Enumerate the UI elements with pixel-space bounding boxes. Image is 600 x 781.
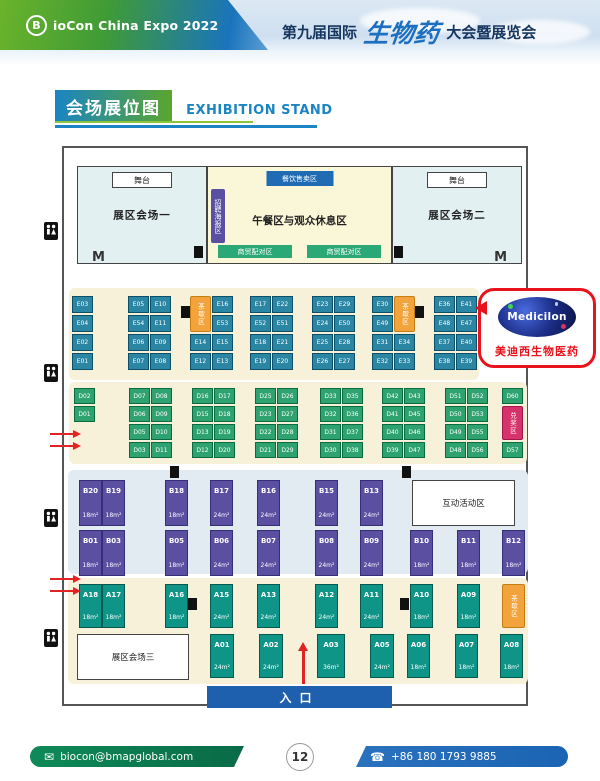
restroom-icon (44, 364, 58, 382)
booth-E05: E05 (128, 296, 149, 313)
booth-E19: E19 (250, 353, 271, 370)
booth-id: B11 (461, 537, 476, 545)
booth-D20: D20 (214, 442, 235, 458)
pillar (400, 598, 409, 610)
booth-D25: D25 (255, 388, 276, 404)
booth-B07: B0724m² (257, 530, 280, 576)
food-sales-label: 餐饮售卖区 (266, 171, 333, 186)
booth-E36: E36 (434, 296, 455, 313)
booth-id: A08 (504, 641, 519, 649)
booth-id: A15 (214, 591, 229, 599)
booth-id: A16 (169, 591, 184, 599)
booth-D29: D29 (277, 442, 298, 458)
booth-A17: A1718m² (102, 584, 125, 628)
booth-E54: E54 (128, 315, 149, 332)
pillar (394, 246, 403, 258)
booth-size: 24m² (364, 614, 380, 621)
expo-title-suffix: 大会暨展览会 (446, 24, 536, 42)
restroom-icon (44, 509, 58, 527)
booth-id: B17 (214, 487, 229, 495)
booth-D50: D50 (445, 406, 466, 422)
booth-E20: E20 (272, 353, 293, 370)
booth-E16: E16 (212, 296, 233, 313)
booth-E49: E49 (372, 315, 393, 332)
booth-D46: D46 (404, 424, 425, 440)
booth-D28: D28 (277, 424, 298, 440)
hall-three: 展区会场三 (77, 634, 189, 680)
booth-size: 18m² (459, 664, 475, 671)
booth-id: B01 (83, 537, 98, 545)
medicilon-callout: Medicilon 美迪西生物医药 (478, 288, 596, 368)
booth-D11: D11 (151, 442, 172, 458)
booth-id: A01 (214, 641, 229, 649)
biz-match-left: 商贸配对区 (218, 245, 292, 258)
booth-size: 18m² (411, 664, 427, 671)
booth-id: B15 (319, 487, 334, 495)
booth-D27: D27 (277, 406, 298, 422)
booth-B01: B0118m² (79, 530, 102, 576)
booth-A15: A1524m² (210, 584, 233, 628)
booth-A08: A0818m² (500, 634, 523, 678)
booth-B20: B2018m² (79, 480, 102, 526)
booth-id: B16 (261, 487, 276, 495)
booth-id: B07 (261, 537, 276, 545)
booth-D08: D08 (151, 388, 172, 404)
booth-B15: B1524m² (315, 480, 338, 526)
booth-E10: E10 (150, 296, 171, 313)
booth-id: A11 (364, 591, 379, 599)
booth-id: B18 (169, 487, 184, 495)
booth-D37: D37 (342, 424, 363, 440)
restroom-icon (44, 629, 58, 647)
expo-logo: B ioCon China Expo 2022 (0, 0, 268, 50)
booth-D40: D40 (382, 424, 403, 440)
exit-arrow (50, 590, 74, 592)
callout-tail (468, 301, 487, 315)
booth-A06: A0618m² (407, 634, 430, 678)
booth-D43: D43 (404, 388, 425, 404)
hall-two-name: 展区会场二 (393, 208, 521, 223)
exit-arrow (50, 578, 74, 580)
booth-size: 18m² (169, 512, 185, 519)
booth-size: 24m² (261, 512, 277, 519)
pillar (170, 466, 179, 478)
booth-D15: D15 (192, 406, 213, 422)
booth-size: 18m² (106, 562, 122, 569)
booth-D32: D32 (320, 406, 341, 422)
booth-E32: E32 (372, 353, 393, 370)
exit-arrow (50, 445, 74, 447)
footer: ✉ biocon@bmapglobal.com 12 ☎ +86 180 179… (0, 738, 600, 781)
booth-id: A18 (83, 591, 98, 599)
booth-size: 18m² (169, 614, 185, 621)
booth-id: B19 (106, 487, 121, 495)
booth-E15: E15 (212, 334, 233, 351)
booth-size: 24m² (214, 562, 230, 569)
booth-E51: E51 (272, 315, 293, 332)
booth-D01: D01 (74, 406, 95, 422)
booth-E12: E12 (190, 353, 211, 370)
booth-D06: D06 (129, 406, 150, 422)
booth-E34: E34 (394, 334, 415, 351)
booth-D16: D16 (192, 388, 213, 404)
medicilon-logo: Medicilon (498, 297, 576, 337)
booth-D33: D33 (320, 388, 341, 404)
booth-E39: E39 (456, 353, 477, 370)
booth-E17: E17 (250, 296, 271, 313)
booth-B08: B0824m² (315, 530, 338, 576)
booth-E11: E11 (150, 315, 171, 332)
booth-E03: E03 (72, 296, 93, 313)
booth-E27: E27 (334, 353, 355, 370)
booth-A18: A1818m² (79, 584, 102, 628)
booth-D12: D12 (192, 442, 213, 458)
booth-size: 24m² (261, 562, 277, 569)
booth-size: 36m² (323, 664, 339, 671)
medicilon-brand: Medicilon (507, 311, 567, 323)
booth-size: 24m² (364, 562, 380, 569)
booth-D18: D18 (214, 406, 235, 422)
email-contact: ✉ biocon@bmapglobal.com (30, 746, 244, 767)
booth-id: A05 (374, 641, 389, 649)
booth-A05: A0524m² (370, 634, 394, 678)
booth-E06: E06 (128, 334, 149, 351)
booth-B12: B1218m² (502, 530, 525, 576)
floor-plan: 舞台 展区会场一 M 餐饮售卖区 招聘海报区 午餐区与观众休息区 商贸配对区 商… (62, 146, 528, 706)
booth-D42: D42 (382, 388, 403, 404)
booth-D19: D19 (214, 424, 235, 440)
booth-D53: D53 (467, 406, 488, 422)
booth-size: 18m² (504, 664, 520, 671)
entrance-arrow (302, 650, 305, 684)
entrance-label: 入口 (207, 686, 392, 708)
door-icon: M (92, 252, 105, 263)
booth-D31: D31 (320, 424, 341, 440)
pillar (402, 466, 411, 478)
booth-D30: D30 (320, 442, 341, 458)
booth-id: B09 (364, 537, 379, 545)
logo-dot (561, 324, 566, 329)
prize-area: 兑奖区 (502, 406, 523, 440)
booth-D36: D36 (342, 406, 363, 422)
booth-E14: E14 (190, 334, 211, 351)
booth-D49: D49 (445, 424, 466, 440)
booth-E22: E22 (272, 296, 293, 313)
booth-E52: E52 (250, 315, 271, 332)
booth-E25: E25 (312, 334, 333, 351)
lunch-rest-label: 午餐区与观众休息区 (208, 213, 391, 228)
phone-text: +86 180 1793 9885 (391, 751, 497, 763)
booth-D45: D45 (404, 406, 425, 422)
tea-break-area: 茶歇区 (502, 584, 525, 628)
booth-D38: D38 (342, 442, 363, 458)
booth-E50: E50 (334, 315, 355, 332)
booth-E48: E48 (434, 315, 455, 332)
booth-E13: E13 (212, 353, 233, 370)
hall-one: 舞台 展区会场一 M (77, 166, 207, 264)
booth-A10: A1018m² (410, 584, 433, 628)
booth-A01: A0124m² (210, 634, 234, 678)
band-b: B2018m²B1918m²B1818m²B1724m²B1624m²B1524… (68, 470, 528, 574)
booth-B03: B0318m² (102, 530, 125, 576)
booth-D48: D48 (445, 442, 466, 458)
booth-D41: D41 (382, 406, 403, 422)
door-icon: M (494, 252, 507, 263)
booth-D52: D52 (467, 388, 488, 404)
phone-icon: ☎ (370, 750, 385, 764)
header-banner: B ioCon China Expo 2022 第九届国际 生物药 大会暨展览会 (0, 0, 600, 66)
booth-id: A02 (263, 641, 278, 649)
booth-E28: E28 (334, 334, 355, 351)
booth-id: B13 (364, 487, 379, 495)
booth-size: 24m² (319, 512, 335, 519)
band-d: D02D01D07D08D06D09D05D10D03D11D16D17D15D… (69, 382, 527, 464)
pillar (181, 306, 190, 318)
page-number: 12 (286, 743, 314, 771)
booth-B10: B1018m² (410, 530, 433, 576)
booth-id: B10 (414, 537, 429, 545)
booth-id: A09 (461, 591, 476, 599)
booth-B06: B0624m² (210, 530, 233, 576)
section-title-en: EXHIBITION STAND (186, 103, 332, 118)
booth-E26: E26 (312, 353, 333, 370)
stage-box: 舞台 (427, 172, 487, 188)
logo-text: ioCon China Expo 2022 (53, 18, 218, 33)
underline-green (55, 121, 253, 123)
booth-B17: B1724m² (210, 480, 233, 526)
booth-size: 18m² (506, 562, 522, 569)
booth-D22: D22 (255, 424, 276, 440)
booth-size: 24m² (319, 562, 335, 569)
booth-id: A03 (323, 641, 338, 649)
booth-size: 24m² (261, 614, 277, 621)
booth-E08: E08 (150, 353, 171, 370)
booth-B19: B1918m² (102, 480, 125, 526)
booth-B13: B1324m² (360, 480, 383, 526)
restroom-icon (44, 222, 58, 240)
tea-break-area: 茶歇区 (190, 296, 211, 332)
page: B ioCon China Expo 2022 第九届国际 生物药 大会暨展览会… (0, 0, 600, 781)
booth-E47: E47 (456, 315, 477, 332)
booth-D47: D47 (404, 442, 425, 458)
exit-arrow (50, 433, 74, 435)
booth-E37: E37 (434, 334, 455, 351)
hall-one-name: 展区会场一 (78, 208, 206, 223)
email-text: biocon@bmapglobal.com (60, 751, 193, 763)
booth-size: 18m² (461, 614, 477, 621)
booth-D10: D10 (151, 424, 172, 440)
booth-A11: A1124m² (360, 584, 383, 628)
booth-id: B12 (506, 537, 521, 545)
booth-D07: D07 (129, 388, 150, 404)
booth-D21: D21 (255, 442, 276, 458)
booth-D02: D02 (74, 388, 95, 404)
booth-D23: D23 (255, 406, 276, 422)
booth-D03: D03 (129, 442, 150, 458)
booth-D39: D39 (382, 442, 403, 458)
booth-size: 18m² (461, 562, 477, 569)
booth-A02: A0224m² (259, 634, 283, 678)
booth-E31: E31 (372, 334, 393, 351)
booth-id: A12 (319, 591, 334, 599)
booth-A13: A1324m² (257, 584, 280, 628)
booth-E30: E30 (372, 296, 393, 313)
booth-size: 24m² (263, 664, 279, 671)
booth-size: 18m² (106, 512, 122, 519)
expo-title-prefix: 第九届国际 (282, 24, 357, 42)
underline-blue (55, 125, 317, 128)
medicilon-caption: 美迪西生物医药 (481, 343, 593, 359)
booth-E01: E01 (72, 353, 93, 370)
booth-E24: E24 (312, 315, 333, 332)
booth-size: 24m² (214, 512, 230, 519)
booth-size: 24m² (214, 664, 230, 671)
booth-id: A10 (414, 591, 429, 599)
booth-size: 24m² (319, 614, 335, 621)
booth-id: B03 (106, 537, 121, 545)
section-title: 会场展位图 EXHIBITION STAND (55, 90, 333, 123)
booth-D55: D55 (467, 424, 488, 440)
booth-B18: B1818m² (165, 480, 188, 526)
pillar (415, 306, 424, 318)
booth-E29: E29 (334, 296, 355, 313)
booth-size: 18m² (414, 562, 430, 569)
booth-id: A07 (459, 641, 474, 649)
booth-D60: D60 (502, 388, 523, 404)
booth-size: 24m² (374, 664, 390, 671)
booth-D51: D51 (445, 388, 466, 404)
hall-two: 舞台 展区会场二 M (392, 166, 522, 264)
band-e: E03E04E02E01E05E10E54E11E06E09E07E08E16E… (69, 288, 479, 380)
booth-D26: D26 (277, 388, 298, 404)
booth-size: 18m² (169, 562, 185, 569)
booth-D13: D13 (192, 424, 213, 440)
booth-D17: D17 (214, 388, 235, 404)
booth-E53: E53 (212, 315, 233, 332)
booth-size: 18m² (414, 614, 430, 621)
booth-id: B20 (83, 487, 98, 495)
interactive-area: 互动活动区 (412, 480, 515, 526)
booth-A07: A0718m² (455, 634, 478, 678)
section-title-zh: 会场展位图 (55, 90, 172, 123)
booth-E09: E09 (150, 334, 171, 351)
pillar (188, 598, 197, 610)
band-a: A1818m²A1718m²A1618m²A1524m²A1324m²A1224… (68, 578, 528, 684)
booth-D57: D57 (502, 442, 523, 458)
booth-D56: D56 (467, 442, 488, 458)
booth-A12: A1224m² (315, 584, 338, 628)
phone-contact: ☎ +86 180 1793 9885 (356, 746, 568, 767)
logo-dot (508, 304, 513, 309)
logo-dot (555, 302, 559, 306)
booth-A09: A0918m² (457, 584, 480, 628)
booth-id: B05 (169, 537, 184, 545)
booth-size: 18m² (106, 614, 122, 621)
booth-id: A06 (411, 641, 426, 649)
pillar (194, 246, 203, 258)
tea-break-area: 茶歇区 (394, 296, 415, 332)
stage-box: 舞台 (112, 172, 172, 188)
booth-size: 18m² (83, 562, 99, 569)
logo-icon: B (26, 15, 47, 36)
booth-id: B06 (214, 537, 229, 545)
booth-E23: E23 (312, 296, 333, 313)
booth-id: B08 (319, 537, 334, 545)
booth-id: A13 (261, 591, 276, 599)
booth-E21: E21 (272, 334, 293, 351)
booth-D09: D09 (151, 406, 172, 422)
booth-size: 24m² (364, 512, 380, 519)
booth-E38: E38 (434, 353, 455, 370)
booth-B16: B1624m² (257, 480, 280, 526)
booth-E33: E33 (394, 353, 415, 370)
booth-D35: D35 (342, 388, 363, 404)
envelope-icon: ✉ (44, 750, 54, 764)
expo-title: 第九届国际 生物药 大会暨展览会 (282, 14, 536, 50)
booth-size: 18m² (83, 614, 99, 621)
booth-D05: D05 (129, 424, 150, 440)
expo-title-script: 生物药 (362, 14, 441, 50)
booth-A03: A0336m² (317, 634, 345, 678)
booth-B05: B0518m² (165, 530, 188, 576)
booth-E02: E02 (72, 334, 93, 351)
booth-E40: E40 (456, 334, 477, 351)
booth-E18: E18 (250, 334, 271, 351)
booth-A16: A1618m² (165, 584, 188, 628)
booth-E07: E07 (128, 353, 149, 370)
booth-B09: B0924m² (360, 530, 383, 576)
booth-size: 24m² (214, 614, 230, 621)
booth-id: A17 (106, 591, 121, 599)
biz-match-right: 商贸配对区 (307, 245, 381, 258)
booth-B11: B1118m² (457, 530, 480, 576)
booth-E04: E04 (72, 315, 93, 332)
lunch-area: 餐饮售卖区 招聘海报区 午餐区与观众休息区 商贸配对区 商贸配对区 (207, 166, 392, 264)
booth-size: 18m² (83, 512, 99, 519)
